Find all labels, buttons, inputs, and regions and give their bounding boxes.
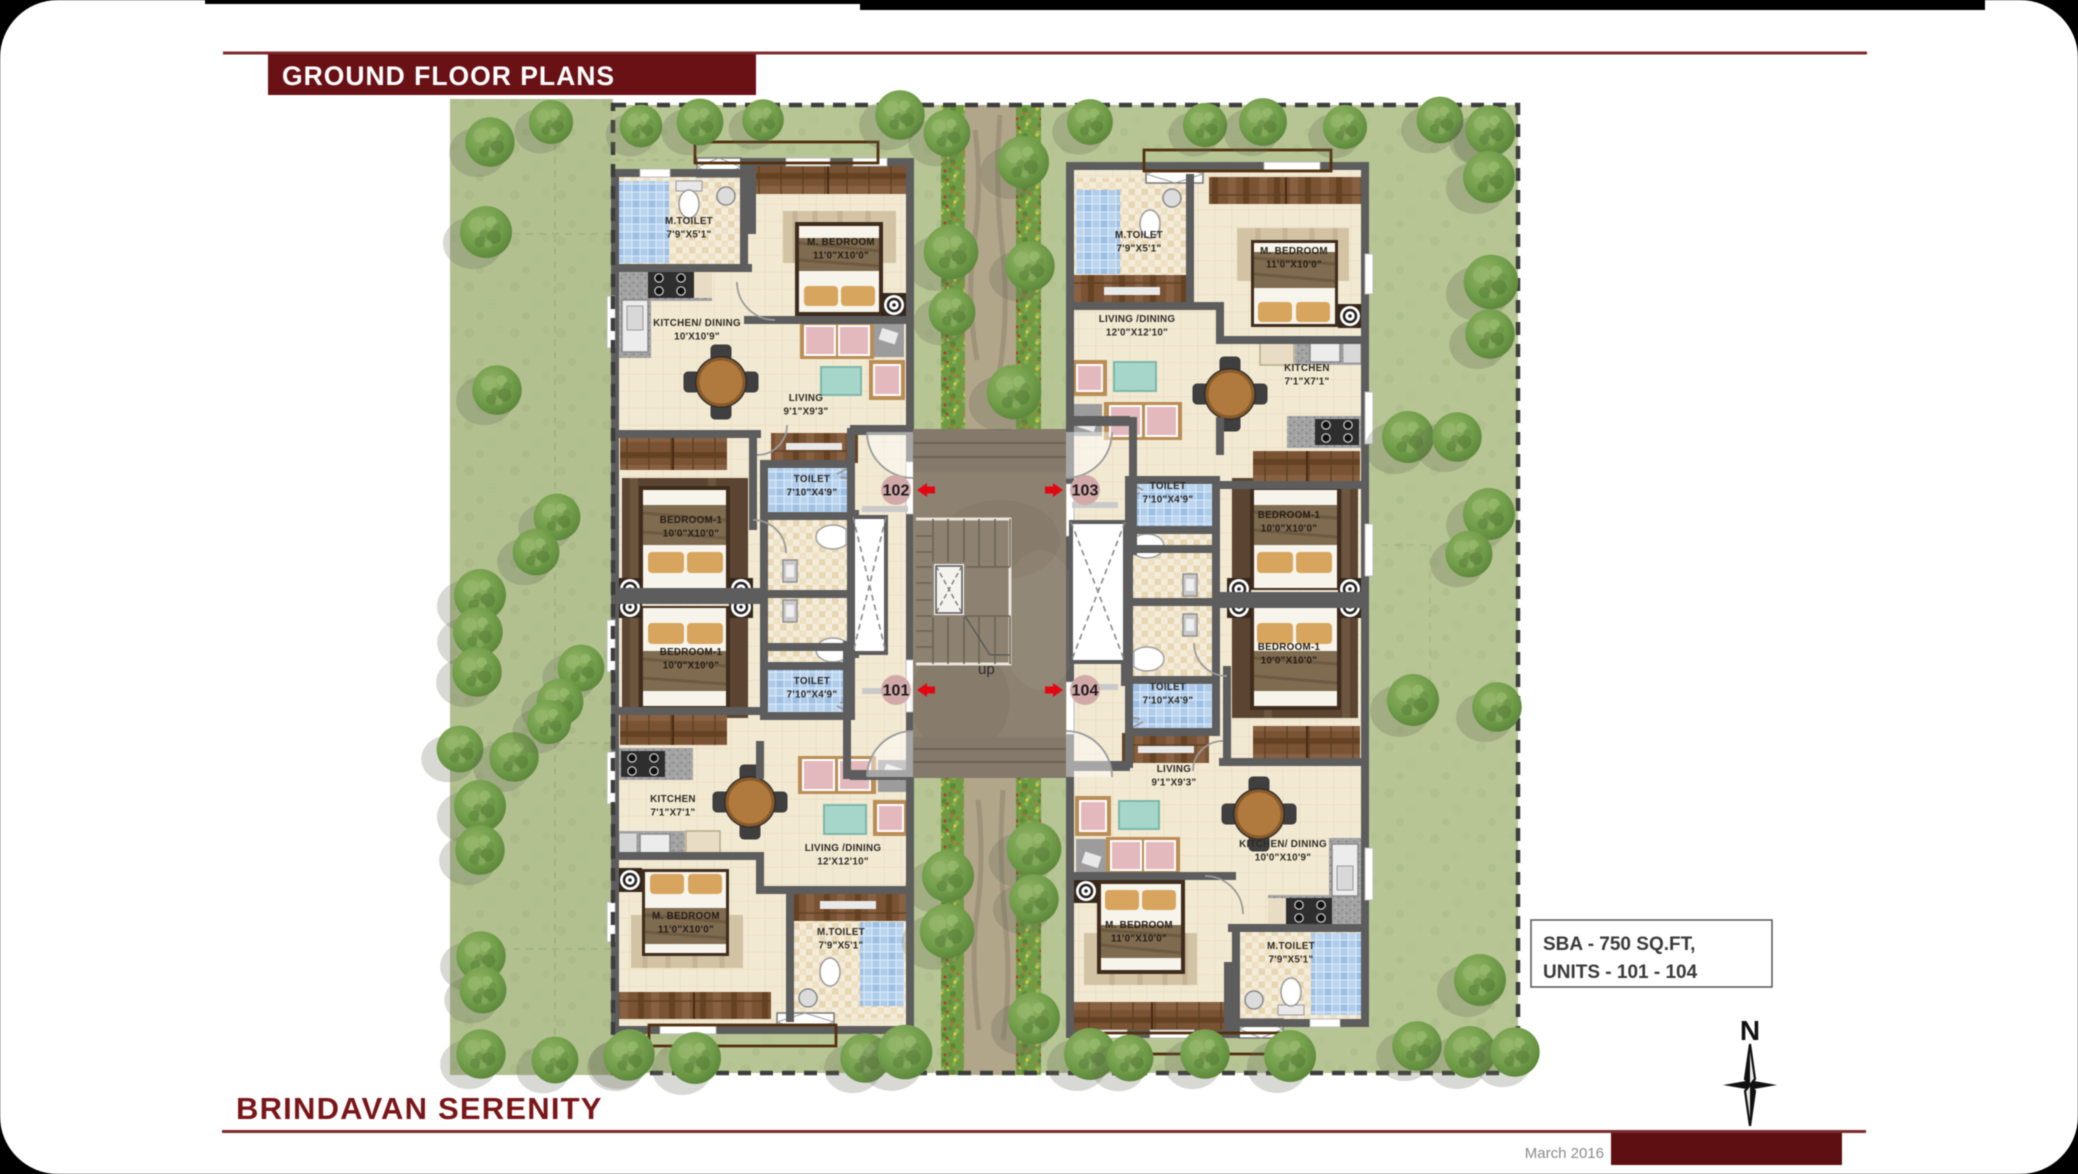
svg-text:11'0"X10'0": 11'0"X10'0"	[1111, 934, 1167, 945]
svg-text:9'1"X9'3": 9'1"X9'3"	[784, 407, 829, 418]
svg-text:SBA - 750 SQ.FT,: SBA - 750 SQ.FT,	[1543, 934, 1695, 955]
svg-text:KITCHEN/ DINING: KITCHEN/ DINING	[653, 318, 741, 329]
svg-text:102: 102	[883, 483, 910, 500]
svg-text:103: 103	[1072, 483, 1099, 500]
svg-text:7'10"X4'9": 7'10"X4'9"	[787, 690, 838, 701]
svg-text:TOILET: TOILET	[794, 474, 830, 485]
svg-text:12'X12'10": 12'X12'10"	[817, 857, 869, 868]
svg-text:7'9"X5'1": 7'9"X5'1"	[1269, 955, 1314, 966]
svg-text:M. BEDROOM: M. BEDROOM	[1105, 920, 1173, 931]
svg-text:10'0"X10'9": 10'0"X10'9"	[1255, 853, 1311, 864]
svg-text:M.TOILET: M.TOILET	[1115, 230, 1163, 241]
svg-text:GROUND FLOOR PLANS: GROUND FLOOR PLANS	[282, 61, 615, 91]
svg-text:LIVING /DINING: LIVING /DINING	[1099, 314, 1176, 325]
svg-text:7'10"X4'9": 7'10"X4'9"	[787, 488, 838, 499]
svg-text:N: N	[1740, 1015, 1760, 1046]
svg-text:11'0"X10'0": 11'0"X10'0"	[1266, 260, 1322, 271]
svg-text:March 2016: March 2016	[1525, 1145, 1604, 1162]
svg-text:10'0"X10'0": 10'0"X10'0"	[663, 529, 719, 540]
svg-text:LIVING: LIVING	[789, 393, 824, 404]
svg-text:104: 104	[1072, 683, 1099, 700]
svg-text:10'0"X10'0": 10'0"X10'0"	[1261, 524, 1317, 535]
svg-text:BEDROOM-1: BEDROOM-1	[1258, 642, 1321, 653]
svg-text:M. BEDROOM: M. BEDROOM	[652, 911, 720, 922]
svg-text:LIVING: LIVING	[1157, 764, 1192, 775]
svg-text:10'X10'9": 10'X10'9"	[674, 332, 720, 343]
svg-text:M.TOILET: M.TOILET	[665, 216, 713, 227]
svg-text:7'10"X4'9": 7'10"X4'9"	[1143, 696, 1194, 707]
svg-text:7'1"X7'1": 7'1"X7'1"	[1285, 377, 1330, 388]
svg-text:LIVING /DINING: LIVING /DINING	[805, 843, 882, 854]
svg-text:up: up	[978, 661, 995, 678]
svg-text:7'9"X5'1": 7'9"X5'1"	[1117, 244, 1162, 255]
svg-text:BEDROOM-1: BEDROOM-1	[660, 647, 723, 658]
svg-text:TOILET: TOILET	[1150, 481, 1186, 492]
svg-text:12'0"X12'10": 12'0"X12'10"	[1106, 328, 1168, 339]
svg-text:11'0"X10'0": 11'0"X10'0"	[813, 251, 869, 262]
svg-text:TOILET: TOILET	[1150, 682, 1186, 693]
svg-text:KITCHEN: KITCHEN	[650, 794, 696, 805]
svg-text:BRINDAVAN SERENITY: BRINDAVAN SERENITY	[236, 1091, 603, 1126]
svg-text:7'10"X4'9": 7'10"X4'9"	[1143, 495, 1194, 506]
svg-text:9'1"X9'3": 9'1"X9'3"	[1152, 778, 1197, 789]
svg-text:KITCHEN/ DINING: KITCHEN/ DINING	[1239, 839, 1327, 850]
svg-text:KITCHEN: KITCHEN	[1284, 363, 1330, 374]
svg-text:BEDROOM-1: BEDROOM-1	[660, 515, 723, 526]
svg-text:TOILET: TOILET	[794, 676, 830, 687]
svg-text:M.TOILET: M.TOILET	[1267, 941, 1315, 952]
svg-text:10'0"X10'0": 10'0"X10'0"	[663, 661, 719, 672]
svg-text:M. BEDROOM: M. BEDROOM	[807, 237, 875, 248]
svg-text:7'9"X5'1": 7'9"X5'1"	[819, 941, 864, 952]
svg-text:7'1"X7'1": 7'1"X7'1"	[651, 808, 696, 819]
svg-text:M. BEDROOM: M. BEDROOM	[1260, 246, 1328, 257]
svg-text:M.TOILET: M.TOILET	[817, 927, 865, 938]
svg-text:BEDROOM-1: BEDROOM-1	[1258, 510, 1321, 521]
svg-text:UNITS - 101 - 104: UNITS - 101 - 104	[1543, 962, 1698, 983]
svg-text:10'0"X10'0": 10'0"X10'0"	[1261, 656, 1317, 667]
svg-text:11'0"X10'0": 11'0"X10'0"	[658, 925, 714, 936]
svg-text:101: 101	[883, 683, 910, 700]
svg-text:7'9"X5'1": 7'9"X5'1"	[667, 230, 712, 241]
